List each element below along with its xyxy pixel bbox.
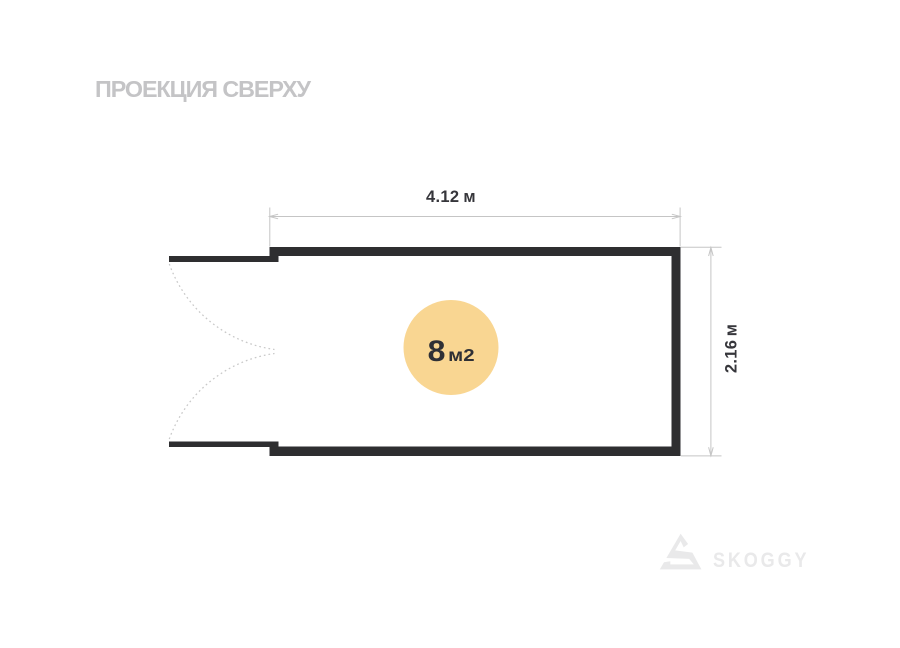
svg-text:8: 8 [428, 335, 446, 368]
svg-text:м2: м2 [448, 345, 475, 365]
svg-text:4.12м: 4.12м [426, 188, 476, 206]
svg-text:SKOGGY: SKOGGY [713, 549, 809, 573]
svg-text:2.16м: 2.16м [722, 324, 740, 373]
svg-text:ПРОЕКЦИЯ СВЕРХУ: ПРОЕКЦИЯ СВЕРХУ [95, 76, 312, 102]
